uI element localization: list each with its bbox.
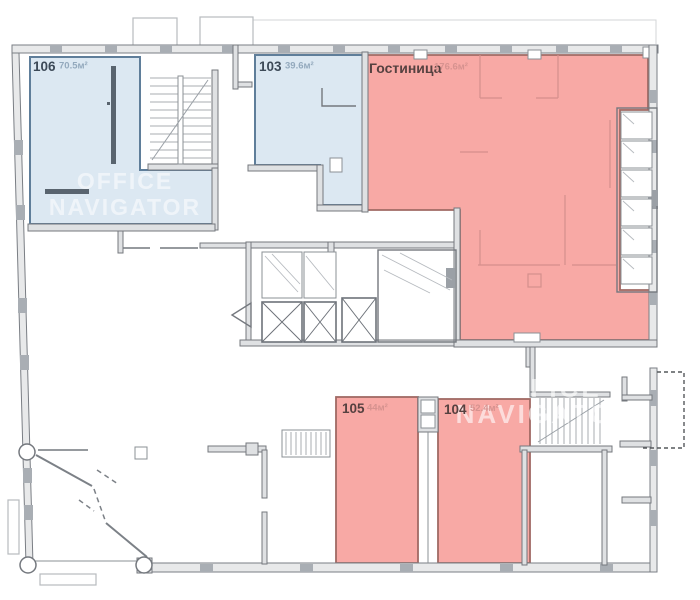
lobby-elements: [19, 444, 152, 573]
column: [20, 557, 36, 573]
svg-text:44м²: 44м²: [367, 403, 388, 414]
svg-text:52.4м²: 52.4м²: [470, 403, 499, 414]
svg-text:176.6м²: 176.6м²: [434, 62, 468, 73]
room-hotel-highlight[interactable]: [365, 55, 656, 340]
svg-text:NAVIGATOR: NAVIGATOR: [49, 194, 201, 220]
floor-plan-viewer: OFFICE NAVIGATOR OFFICE NAVIGATOR 106 70…: [0, 0, 700, 600]
room-105-highlight[interactable]: [336, 397, 418, 563]
small-stair: [282, 430, 330, 457]
svg-text:39.6м²: 39.6м²: [285, 61, 314, 72]
column: [19, 444, 35, 460]
svg-text:103: 103: [259, 59, 282, 74]
hotel-door-notch: [514, 333, 540, 342]
column: [136, 557, 152, 573]
floor-plan-canvas: OFFICE NAVIGATOR OFFICE NAVIGATOR 106 70…: [0, 0, 700, 600]
elevator-core: [232, 250, 456, 342]
svg-text:OFFICE: OFFICE: [77, 168, 173, 194]
room-103-highlight[interactable]: [255, 55, 363, 205]
watermark-office-navigator-2: OFFICE NAVIGATOR: [456, 373, 635, 429]
balcony-strip: [617, 108, 658, 292]
overhang-dashed-outline: [640, 372, 684, 448]
staircase-top-left: [150, 76, 211, 164]
svg-text:106: 106: [33, 59, 56, 74]
svg-text:105: 105: [342, 401, 365, 416]
svg-text:104: 104: [444, 402, 467, 417]
svg-text:70.5м²: 70.5м²: [59, 61, 88, 72]
svg-text:Гостиница: Гостиница: [369, 60, 442, 76]
